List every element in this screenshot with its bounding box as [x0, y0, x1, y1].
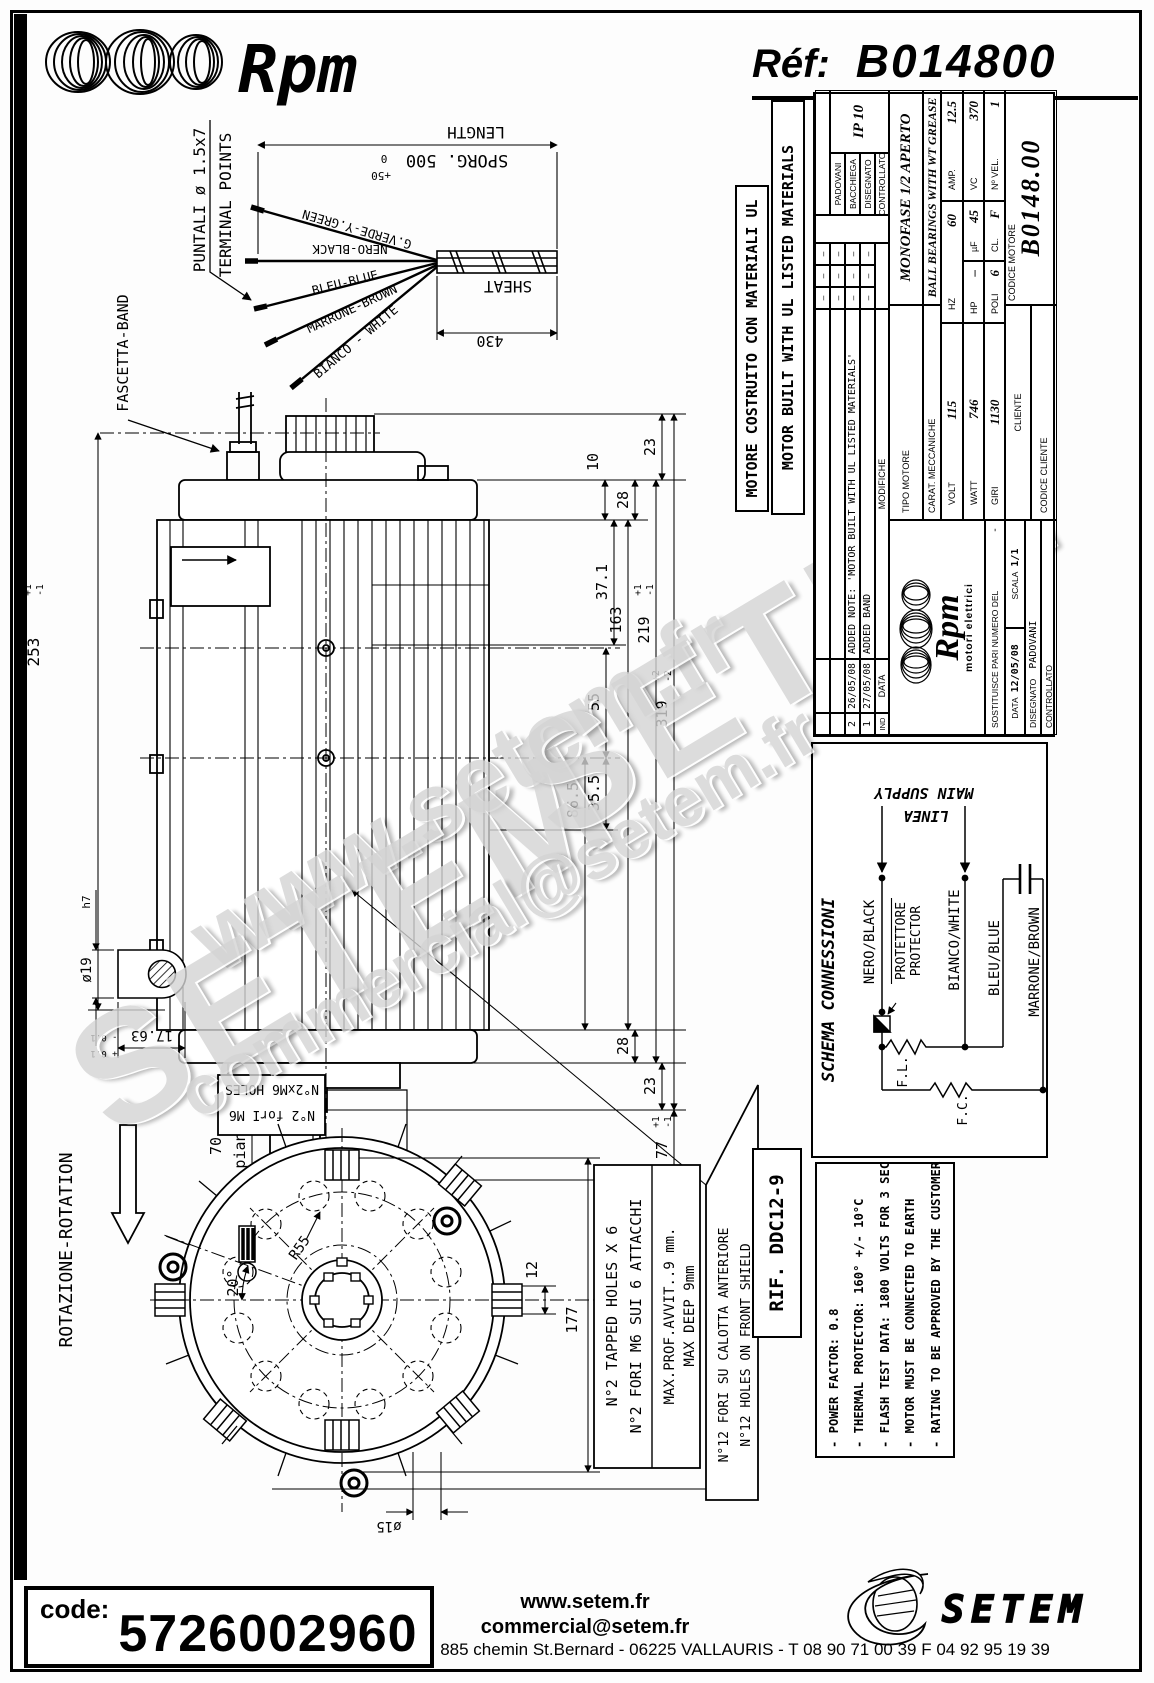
watt-label: WATT — [969, 481, 979, 506]
sostituisce-label: SOSTITUISCE PARI NUMERO DEL — [990, 591, 1000, 728]
dim-86-5: 86.5 — [564, 782, 582, 818]
titleblock-brand: Rpm — [933, 594, 963, 660]
motor-side-view — [100, 392, 620, 1192]
giri-cell: GIRI1130 — [984, 323, 1005, 520]
dim-55: 55 — [585, 693, 603, 711]
ref-label: Réf: — [752, 42, 830, 87]
data-label: DATA — [1010, 697, 1020, 718]
dim-163: 163 — [607, 606, 625, 633]
mod-sig: – — [845, 265, 860, 287]
watt-cell: WATT746 — [963, 323, 984, 520]
holes-line1: N°2 forI M6 — [229, 1107, 315, 1122]
dim-430: 430 — [476, 332, 503, 350]
volt-label: VOLT — [947, 482, 957, 505]
mod-sig: – — [830, 287, 845, 309]
name-controllato: CONTROLLATO — [875, 153, 889, 215]
brand-text: Rpm — [238, 31, 357, 108]
mod-spacer — [815, 215, 889, 243]
dim-219-minus: -1 — [645, 584, 656, 596]
code-value: 5726002960 — [113, 1604, 423, 1664]
title-block: – – – – – – 2 26/05/08 ADDED NOTE: 'MOTO… — [813, 92, 1055, 737]
note-flash-test: - FLASH TEST DATA: 1800 VOLTS FOR 3 SEC — [873, 1172, 898, 1448]
titleblock-logo-cell: Rpm motori elettrici — [889, 520, 985, 735]
tapped-holes-it: N°2 FORI M6 SUI 6 ATTACCHI — [627, 1199, 645, 1434]
max-depth-en: MAX DEEP 9mm — [682, 1265, 698, 1366]
name-disegnato: DISEGNATO — [860, 153, 875, 215]
mod-sig: – — [860, 243, 875, 265]
dim-35-5: 35.5 — [585, 775, 603, 811]
tipo-motore-label-cell: TIPO MOTORE — [889, 305, 923, 520]
setem-logo-text: SETEM — [942, 1588, 1088, 1631]
scala-label: SCALA — [1010, 572, 1020, 600]
dim-28-bottom: 28 — [614, 1037, 632, 1055]
footer-address: 885 chemin St.Bernard - 06225 VALLAURIS … — [440, 1640, 1050, 1660]
hz-cell: HZ60 — [941, 201, 963, 323]
codice-motore-cell: CODICE MOTORE B0148.00 — [1005, 90, 1057, 305]
rif-box: RIF. DDC12-9 — [752, 1148, 802, 1338]
code-box: code: 5726002960 — [24, 1586, 434, 1668]
sporg-plus: +50 — [371, 169, 391, 182]
dim-10: 10 — [584, 453, 602, 471]
codice-cliente-label: CODICE CLIENTE — [1039, 437, 1049, 513]
nvel-value: 1 — [987, 101, 1003, 108]
footer-contacts: www.setem.fr commercial@setem.fr — [455, 1590, 715, 1640]
titleblock-brand-sub: motori elettrici — [963, 583, 975, 672]
cable-diagram: PUNTALI ø 1.5x7 TERMINAL POINTS FASCETTA… — [114, 120, 557, 451]
cliente-label: CLIENTE — [1013, 394, 1023, 432]
protettore-label: PROTETTORE — [894, 902, 909, 980]
dim-37-1: 37.1 — [593, 564, 611, 600]
nvel-label: Nº VEL. — [990, 158, 1000, 190]
hp-label: HP — [969, 301, 979, 314]
dim-17-63-plus: + 0.1 — [90, 1048, 117, 1058]
dim-219: 219 — [635, 616, 653, 643]
name-bacchiega: BACCHIEGA — [845, 153, 860, 215]
cl-value: F — [987, 210, 1003, 219]
technical-notes-box: - POWER FACTOR: 0.8 - THERMAL PROTECTOR:… — [815, 1162, 955, 1458]
left-binding-bar — [14, 14, 27, 1580]
cliente-cell: CLIENTE — [1005, 305, 1031, 520]
dim-177: 177 — [563, 1306, 581, 1333]
mod-sig: – — [830, 243, 845, 265]
dim-dia19: ø19 — [79, 957, 95, 982]
dim-23-bottom: 23 — [641, 1077, 659, 1095]
dim-319-plus: +2 — [651, 670, 662, 681]
wire-bleu-blue: BLEU/BLUE — [987, 920, 1003, 996]
carat-label-cell: CARAT. MECCANICHE — [923, 305, 941, 520]
mod-sig: – — [845, 243, 860, 265]
dim-23-top: 23 — [641, 438, 659, 456]
setem-logo: SETEM — [848, 1569, 1088, 1644]
mod-sig: – — [815, 287, 830, 309]
mod-cell — [830, 713, 845, 735]
wire-marrone-brown: MARRONE/BROWN — [1027, 907, 1043, 1017]
volt-cell: VOLT115 — [941, 323, 963, 520]
connection-schema: SCHEMA CONNESSIONI MAIN SUPPLY LINEA NER… — [812, 743, 1047, 1157]
mod-header-data: DATA — [875, 659, 889, 713]
fascetta-label: FASCETTA-BAND — [114, 294, 132, 411]
dim-28-top: 28 — [614, 491, 632, 509]
dim-319: 319 — [653, 700, 671, 727]
rpm-logo: Rpm — [46, 30, 357, 108]
volt-value: 115 — [944, 401, 960, 420]
mod-cell — [815, 309, 830, 659]
dim-319-minus: -2 — [663, 670, 674, 681]
dim-77-minus: -1 — [663, 1116, 674, 1128]
mod-row2-date: 26/05/08 — [845, 659, 860, 713]
hp-value: – — [966, 270, 982, 277]
poli-cell: POLI6 — [984, 261, 1005, 323]
dim-17-63-minus: - 0.1 — [90, 1032, 117, 1042]
dim-17-63: 17.63 — [131, 1027, 173, 1043]
giri-label: GIRI — [990, 486, 1000, 505]
codice-motore-label: CODICE MOTORE — [1007, 224, 1017, 301]
tapped-holes-en: N°2 TAPPED HOLES X 6 — [603, 1226, 621, 1407]
max-depth-it: MAX.PROF.AVVIT..9 mm. — [662, 1227, 678, 1404]
uf-label: µF — [969, 241, 979, 252]
ul-note-english: MOTOR BUILT WITH UL LISTED MATERIALS — [771, 100, 805, 515]
tipo-motore-label: TIPO MOTORE — [901, 450, 911, 513]
dim-77-plus: +1 — [651, 1116, 662, 1128]
giri-value: 1130 — [987, 400, 1003, 425]
vc-cell: VC370 — [963, 90, 984, 201]
amp-cell: AMP.12.5 — [941, 90, 963, 201]
fl-label: F.L. — [896, 1056, 911, 1087]
mod-corner — [815, 90, 830, 215]
note-earth: - MOTOR MUST BE CONNECTED TO EARTH — [898, 1172, 923, 1448]
uf-cell: µF45 — [963, 201, 984, 261]
footer-site[interactable]: www.setem.fr — [455, 1590, 715, 1615]
mod-cell — [830, 309, 845, 659]
wire-black-label: NERO-BLACK — [312, 242, 388, 257]
mod-sig: – — [815, 243, 830, 265]
carat-value-cell: BALL BEARINGS WITH WT GREASE — [923, 90, 941, 305]
codice-motore-value: B0148.00 — [1016, 139, 1046, 257]
footer-email[interactable]: commercial@setem.fr — [455, 1615, 715, 1640]
sostituisce-value: - — [990, 527, 1001, 533]
data-cell: DATA 12/05/08 — [1005, 628, 1025, 735]
holes-line2: N°2xM6 HOLES — [225, 1081, 319, 1096]
mod-row2-ind: 2 — [845, 713, 860, 735]
schema-title: SCHEMA CONNESSIONI — [819, 897, 839, 1082]
mod-row1-date: 27/05/08 — [860, 659, 875, 713]
amp-value: 12.5 — [944, 101, 960, 124]
wire-nero-black: NERO/BLACK — [862, 899, 878, 984]
angle-20-label: 20° — [224, 1269, 242, 1296]
amp-label: AMP. — [947, 169, 957, 190]
hp-cell: HP– — [963, 261, 984, 323]
protector-label: PROTECTOR — [909, 906, 924, 977]
dim-70: 70 — [207, 1137, 225, 1155]
controllato-label: CONTROLLATO — [1044, 665, 1054, 728]
n12-holes-it: N°12 FORI SU CALOTTA ANTERIORE — [717, 1228, 732, 1463]
mod-row1-ind: 1 — [860, 713, 875, 735]
mod-cell — [830, 659, 845, 713]
nvel-cell: Nº VEL.1 — [984, 90, 1005, 201]
tipo-motore-value-cell: MONOFASE 1/2 APERTO — [889, 90, 923, 305]
ul-note-italian: MOTORE COSTRUITO CON MATERIALI UL — [735, 185, 769, 512]
drawing-page: Rpm — [0, 0, 1154, 1683]
dim-h7: h7 — [80, 895, 93, 908]
poli-value: 6 — [987, 270, 1003, 277]
note-thermal-protector: - THERMAL PROTECTOR: 160° +/- 10°C — [847, 1172, 872, 1448]
note-power-factor: - POWER FACTOR: 0.8 — [822, 1172, 847, 1448]
sheat-label: SHEAT — [484, 277, 533, 296]
name-padovani: PADOVANI — [830, 153, 845, 215]
poli-label: POLI — [990, 293, 1000, 314]
length-label: LENGTH — [447, 123, 505, 142]
fc-label: F.C. — [956, 1094, 971, 1125]
mod-sig: – — [845, 287, 860, 309]
mod-header-modifiche: MODIFICHE — [875, 309, 889, 659]
code-label: code: — [40, 1594, 109, 1625]
scala-value: 1/1 — [1010, 549, 1021, 567]
mod-row1-text: ADDED BAND — [860, 309, 875, 659]
ref-value: B014800 — [856, 34, 1057, 88]
titleblock-coils — [899, 568, 933, 688]
uf-value: 45 — [966, 210, 982, 223]
disegnato-value: PADOVANI — [1028, 621, 1039, 669]
mod-header-ind: IND — [875, 713, 889, 735]
mod-sig: – — [860, 287, 875, 309]
rotation-label: ROTAZIONE-ROTATION — [56, 1152, 77, 1347]
mod-row2-text: ADDED NOTE: 'MOTOR BUILT WITH UL LISTED … — [845, 309, 860, 659]
hz-label: HZ — [947, 298, 957, 310]
sporg-label: SPORG. 500 — [406, 150, 508, 170]
wire-bianco-white: BIANCO/WHITE — [947, 889, 963, 990]
dim-219-plus: +1 — [633, 584, 644, 596]
cl-cell: CL.F — [984, 201, 1005, 261]
dim-12: 12 — [523, 1261, 541, 1279]
terminal-points-label: TERMINAL POINTS — [216, 133, 235, 278]
vc-label: VC — [969, 177, 979, 190]
mod-sig: – — [815, 265, 830, 287]
sporg-zero: 0 — [381, 152, 388, 165]
ip-rating: IP 10 — [830, 90, 889, 153]
cl-label: CL. — [990, 238, 1000, 252]
watt-value: 746 — [966, 400, 982, 420]
data-value: 12/05/08 — [1010, 644, 1021, 692]
mod-empty — [875, 243, 889, 309]
disegnato-cell: DISEGNATO PADOVANI — [1025, 520, 1041, 735]
dim-253-minus: -1 — [35, 584, 46, 596]
vc-value: 370 — [966, 101, 982, 121]
controllato-cell: CONTROLLATO — [1041, 520, 1057, 735]
note-rating: - RATING TO BE APPROVED BY THE CUSTOMER — [924, 1172, 949, 1448]
main-supply-label: MAIN SUPPLY — [873, 784, 974, 802]
carat-label: CARAT. MECCANICHE — [927, 419, 937, 513]
linea-label: LINEA — [903, 807, 948, 825]
mod-sig: – — [860, 265, 875, 287]
scala-cell: SCALA 1/1 — [1005, 520, 1025, 628]
dim-dia15: ø15 — [376, 1518, 401, 1534]
mod-cell — [815, 659, 830, 713]
disegnato-label: DISEGNATO — [1028, 679, 1038, 728]
codice-cliente-cell: CODICE CLIENTE — [1031, 305, 1057, 520]
puntali-label: PUNTALI ø 1.5x7 — [190, 128, 209, 273]
hz-value: 60 — [944, 214, 960, 227]
mod-cell — [815, 713, 830, 735]
mod-sig: – — [830, 265, 845, 287]
sostituisce-row: SOSTITUISCE PARI NUMERO DEL - — [985, 520, 1005, 735]
